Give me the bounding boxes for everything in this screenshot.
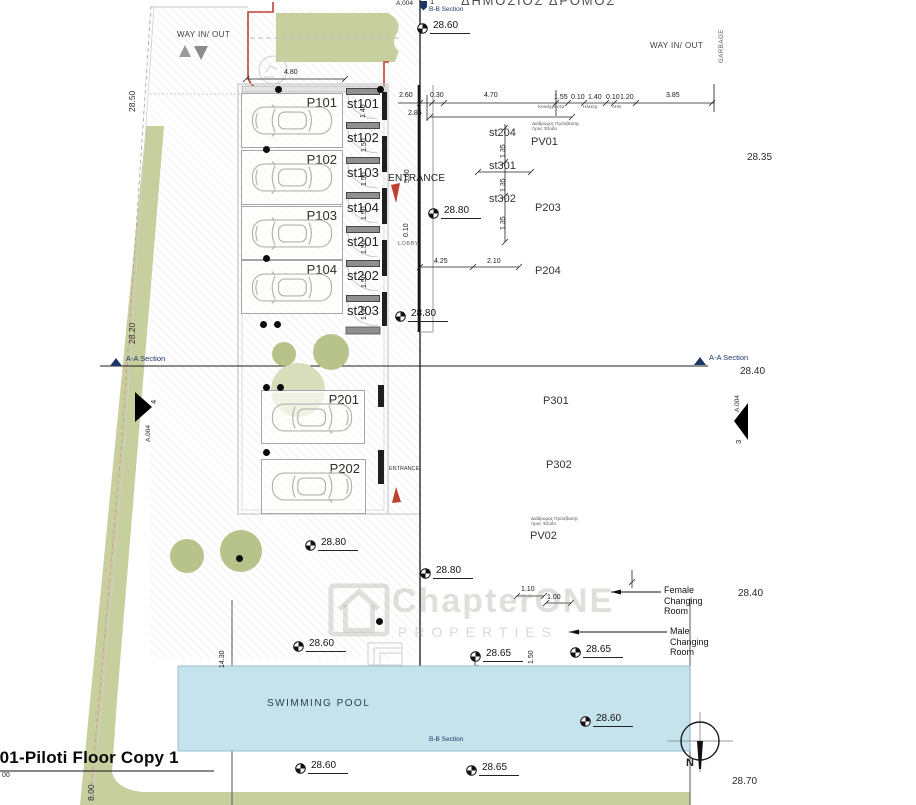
elevation-label: 28.50	[127, 91, 137, 112]
benchmark-icon	[570, 647, 581, 658]
elevation-value: 28.60	[308, 760, 348, 774]
car-icon	[268, 399, 356, 436]
plan-label-p204: P204	[535, 265, 561, 277]
section-aa-right-label: A-A Section	[709, 354, 748, 362]
elevation-marker: 28.80	[420, 565, 473, 579]
dimension-label: 3.85	[666, 92, 680, 99]
pv02-access-note: Διάδρομος Πρόσβασης προς Έξοδο	[531, 516, 578, 527]
bb-marker-top-icon	[420, 1, 427, 11]
storage-wall	[346, 295, 380, 302]
storage-end-wall	[346, 327, 380, 334]
dimension-label: 0.10	[606, 94, 620, 101]
benchmark-icon	[417, 23, 428, 34]
north-label: N	[686, 757, 694, 769]
parking-stall-p201: P201	[261, 390, 365, 444]
dimension-label: 2.85	[408, 110, 422, 117]
dimension-label: 2.10	[487, 258, 501, 265]
entrance-side-label: ENTRANCE	[389, 466, 419, 472]
dimension-label: 1.50	[361, 206, 368, 220]
dimension-label: 1.35	[500, 216, 507, 230]
elevation-marker: 28.65	[466, 762, 519, 776]
storage-wall	[346, 157, 380, 164]
column-dot	[377, 86, 384, 93]
elevation-marker: 28.60	[293, 638, 346, 652]
elevation-label: 28.40	[740, 366, 765, 377]
dimension-label: 0.10	[403, 223, 410, 237]
note-line: προς Έξοδο	[531, 521, 578, 526]
label-line: Female	[664, 585, 703, 596]
way-in-out-right-label: WAY IN/ OUT	[650, 42, 703, 51]
storage-wall	[346, 122, 380, 129]
swimming-pool-label: SWIMMING POOL	[267, 698, 370, 709]
column-dot	[275, 86, 282, 93]
dimension-label: 1.50	[361, 240, 368, 254]
storage-wall	[346, 192, 380, 199]
dimension-label: 0.30	[430, 92, 444, 99]
elevation-value: 28.80	[441, 205, 481, 219]
section-arrow-left-number: 4	[150, 400, 158, 404]
label-line: Changing	[664, 596, 703, 607]
leader-arrows	[569, 590, 667, 635]
section-bb-bottom-label: B-B Section	[429, 736, 463, 743]
elevation-label: 8.00	[86, 784, 96, 801]
parking-stall-p104: P104	[241, 260, 343, 314]
garbage-label: GARBAGE	[719, 29, 726, 63]
car-icon	[248, 269, 336, 306]
elevation-value: 28.60	[593, 713, 633, 727]
plan-label-p301: P301	[543, 395, 569, 407]
tree	[313, 334, 349, 370]
elevation-marker: 28.60	[580, 713, 633, 727]
plan-label-st204: st204	[489, 127, 516, 139]
dimension-label: 1.35	[500, 178, 507, 192]
column-dot	[263, 146, 270, 153]
dimension-label: 1.40	[588, 94, 602, 101]
elevation-marker: 28.65	[570, 644, 623, 658]
elevation-value: 28.65	[583, 644, 623, 658]
benchmark-icon	[293, 641, 304, 652]
dimension-label: 4.70	[484, 92, 498, 99]
entrance-main-label: ENTRANCE	[388, 173, 445, 184]
plan-label-pv02: PV02	[530, 530, 557, 542]
plan-label-st302: st302	[489, 193, 516, 205]
moto-glyph	[264, 66, 277, 77]
dimension-label: 14.30	[219, 650, 226, 668]
utility-label-electric: Ηλεκτρ.	[583, 104, 599, 109]
elevation-label: 00	[2, 772, 10, 779]
column-dot	[236, 555, 243, 562]
label-line: Male	[670, 626, 709, 637]
sheet-ref-top: A.004	[396, 0, 413, 7]
dimension-label: 4.25	[434, 258, 448, 265]
plan-linework	[0, 0, 916, 805]
wall-segments	[378, 92, 387, 484]
dimension-label: 1.50	[361, 274, 368, 288]
elevation-value: 28.80	[408, 308, 448, 322]
elevation-marker: 28.80	[395, 308, 448, 322]
elevation-label: 28.40	[738, 588, 763, 599]
section-arrow-left-icon	[135, 392, 152, 422]
female-changing-room-label: Female Changing Room	[664, 585, 703, 617]
dimension-label: 1.50	[361, 172, 368, 186]
dimension-label: 1.50	[361, 138, 368, 152]
elevation-marker: 28.60	[417, 20, 470, 34]
way-triangle-down-icon	[194, 46, 208, 60]
dimension-label: 0.10	[571, 94, 585, 101]
elevation-value: 28.65	[483, 648, 523, 662]
aa-marker-right-icon	[694, 357, 706, 365]
column-dot	[263, 255, 270, 262]
section-aa-left-label: A-A Section	[126, 355, 165, 363]
floor-plan-canvas: ChapterONE PROPERTIES ΔΗΜΟΣΙΟΣ ΔΡΟΜΟΣ WA…	[0, 0, 916, 805]
utility-label-communal: Κοινόχρηστα	[538, 104, 564, 109]
benchmark-icon	[305, 540, 316, 551]
benchmark-icon	[470, 651, 481, 662]
benchmark-icon	[580, 716, 591, 727]
elevation-value: 28.80	[433, 565, 473, 579]
plan-label-p203: P203	[535, 202, 561, 214]
elevation-marker: 28.80	[305, 537, 358, 551]
storage-wall	[346, 88, 380, 95]
column-dot	[263, 384, 270, 391]
car-icon	[268, 468, 356, 505]
dimension-label: 5.60	[404, 169, 411, 183]
column-dot	[274, 321, 281, 328]
dimension-label: 1.35	[500, 144, 507, 158]
section-arrow-left-sheet: A.004	[145, 425, 152, 442]
label-line: Room	[664, 606, 703, 617]
tree	[170, 539, 204, 573]
column-dot	[376, 618, 383, 625]
tree	[220, 530, 262, 572]
lobby-label: LOBBY	[398, 241, 419, 247]
section-bb-top-label: B-B Section	[429, 6, 463, 13]
parking-stall-p103: P103	[241, 206, 343, 260]
elevation-value: 28.60	[430, 20, 470, 34]
dimension-label: 4.80	[284, 69, 298, 76]
plan-label-p302: P302	[546, 459, 572, 471]
elevation-label: 28.20	[127, 323, 137, 344]
column-dot	[277, 384, 284, 391]
elevation-marker: 28.60	[295, 760, 348, 774]
dimension-label: 1.10	[521, 586, 535, 593]
car-icon	[248, 102, 336, 139]
benchmark-icon	[466, 765, 477, 776]
elevation-value: 28.80	[318, 537, 358, 551]
dimension-label: 1.55	[554, 94, 568, 101]
pool-steps	[368, 643, 402, 665]
storage-wall	[346, 260, 380, 267]
label-line: Changing	[670, 637, 709, 648]
benchmark-icon	[395, 311, 406, 322]
dimension-label: 1.40	[360, 104, 367, 118]
entrance-main-arrow-icon	[391, 183, 400, 203]
section-arrow-right-number: 3	[735, 440, 743, 444]
way-triangle-up-icon	[179, 45, 191, 57]
elevation-marker: 28.65	[470, 648, 523, 662]
label-line: Room	[670, 647, 709, 658]
note-line: προς Έξοδο	[532, 126, 579, 131]
dimension-label: 1.60	[361, 306, 368, 320]
elevation-value: 28.60	[306, 638, 346, 652]
storage-wall	[346, 226, 380, 233]
column-dot	[263, 449, 270, 456]
utility-label-ahk: ΑΗΚ	[612, 104, 621, 109]
entrance-side-arrow-icon	[392, 487, 401, 503]
parking-stall-p101: P101	[241, 93, 343, 148]
aa-marker-left-icon	[110, 358, 122, 366]
male-changing-room-label: Male Changing Room	[670, 626, 709, 658]
street-name: ΔΗΜΟΣΙΟΣ ΔΡΟΜΟΣ	[461, 0, 616, 8]
parking-stall-p102: P102	[241, 150, 343, 205]
plan-label-pv01: PV01	[531, 136, 558, 148]
dimension-label: 1.50	[528, 650, 535, 664]
elevation-value: 28.65	[479, 762, 519, 776]
way-in-out-left-label: WAY IN/ OUT	[177, 31, 230, 40]
dimension-label: 2.60	[399, 92, 413, 99]
benchmark-icon	[420, 568, 431, 579]
elevation-marker: 28.80	[428, 205, 481, 219]
elevation-label: 28.35	[747, 152, 772, 163]
car-icon	[248, 215, 336, 252]
tree	[272, 342, 296, 366]
pv01-access-note: Διάδρομος Πρόσβασης προς Έξοδο	[532, 121, 579, 132]
section-arrow-right-sheet: A.004	[734, 395, 741, 412]
moto-bay-icon	[259, 56, 287, 84]
elevation-label: 28.70	[732, 776, 757, 787]
car-icon	[248, 159, 336, 196]
drawing-title: 001-Piloti Floor Copy 1	[0, 748, 179, 768]
elevation-label: 28.70	[752, 0, 777, 3]
benchmark-icon	[295, 763, 306, 774]
parking-stall-p202: P202	[261, 459, 366, 514]
benchmark-icon	[428, 208, 439, 219]
dimension-label: 1.20	[620, 94, 634, 101]
dimension-label: 1.00	[547, 594, 561, 601]
plan-label-st301: st301	[489, 160, 516, 172]
column-dot	[260, 321, 267, 328]
